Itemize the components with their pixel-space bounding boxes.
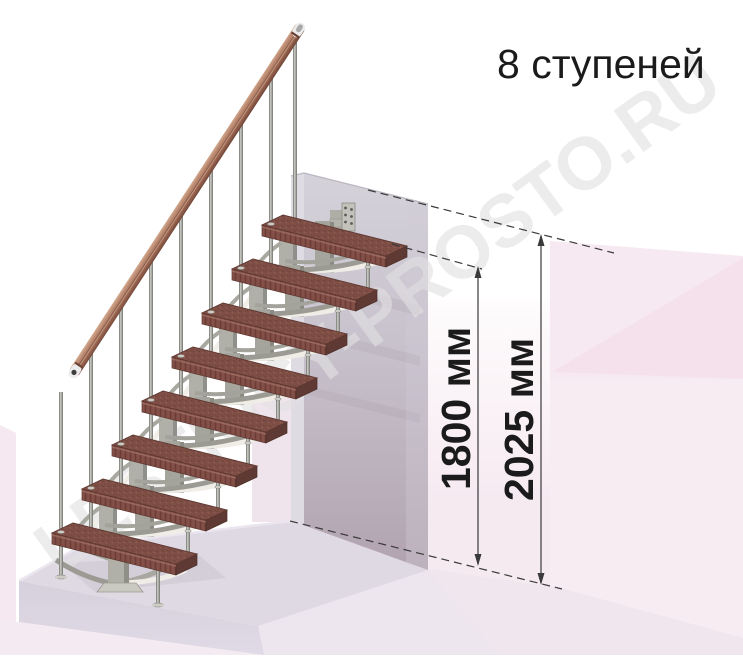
svg-text:2025 мм: 2025 мм [496, 338, 542, 501]
svg-text:1800 мм: 1800 мм [433, 327, 479, 490]
svg-text:8 ступеней: 8 ступеней [497, 41, 705, 87]
